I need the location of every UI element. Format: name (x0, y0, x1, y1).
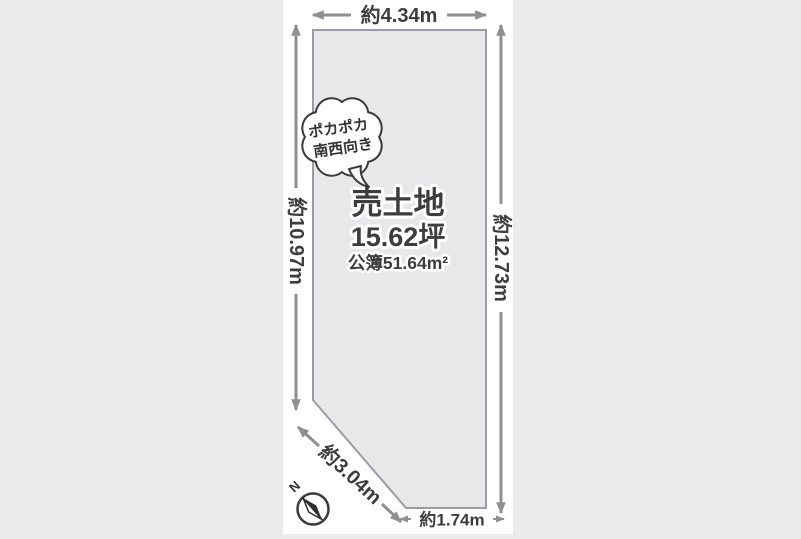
dimension-left-label: 約10.97m (285, 197, 309, 285)
parcel-area-tsubo: 15.62坪 (351, 222, 446, 252)
parcel-title: 売土地 (352, 186, 445, 221)
dimension-bottom-label: 約1.74m (419, 510, 484, 530)
parcel-info: 売土地 15.62坪 公簿51.64m² (348, 186, 448, 273)
dimension-top-label: 約4.34m (361, 3, 438, 27)
diagram-canvas: 約4.34m 約10.97m 約12.73m 約3.04m 約1.74m (0, 0, 801, 534)
land-plot-diagram: 約4.34m 約10.97m 約12.73m 約3.04m 約1.74m (0, 0, 801, 534)
parcel-area-registered: 公簿51.64m² (348, 253, 448, 273)
dimension-right-label: 約12.73m (490, 214, 514, 302)
